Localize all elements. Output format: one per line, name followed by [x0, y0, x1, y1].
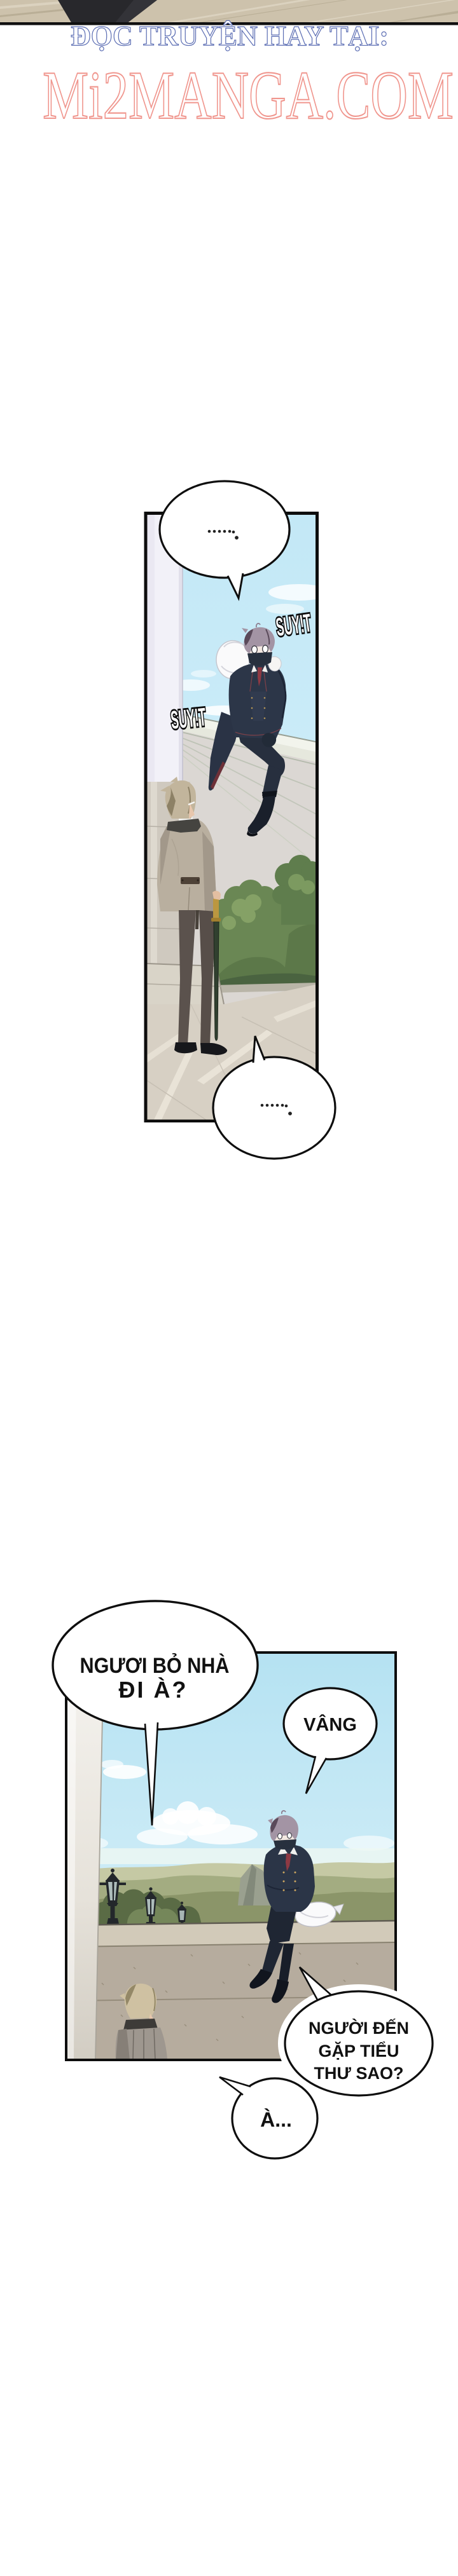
svg-text:GẶP TIỂU: GẶP TIỂU — [318, 2041, 399, 2061]
svg-text:ĐỌC TRUYỆN HAY TẠI:: ĐỌC TRUYỆN HAY TẠI: — [71, 20, 389, 51]
svg-text:VÂNG: VÂNG — [303, 1714, 357, 1735]
svg-text:SUY!T: SUY!T — [274, 608, 313, 641]
svg-text:NGƯỜI ĐẾN: NGƯỜI ĐẾN — [309, 2018, 409, 2038]
svg-text:SUY!T: SUY!T — [169, 702, 207, 734]
svg-text:THƯ SAO?: THƯ SAO? — [314, 2064, 404, 2083]
svg-text:À...: À... — [260, 2108, 292, 2131]
svg-text:Mi2MANGA.COM: Mi2MANGA.COM — [43, 57, 454, 133]
svg-text:ĐI À?: ĐI À? — [119, 1677, 188, 1703]
svg-text:NGƯƠI BỎ NHÀ: NGƯƠI BỎ NHÀ — [80, 1653, 230, 1677]
